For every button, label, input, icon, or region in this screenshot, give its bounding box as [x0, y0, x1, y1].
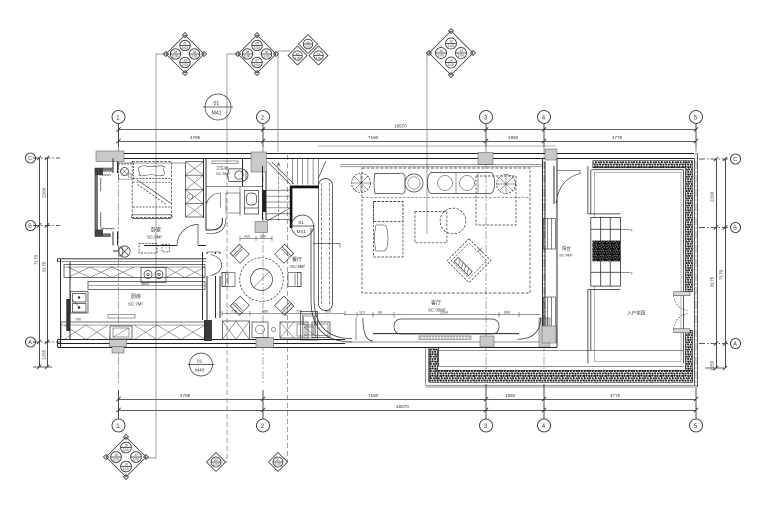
svg-text:1255: 1255 — [710, 360, 715, 371]
svg-text:2200: 2200 — [710, 191, 715, 202]
svg-text:08: 08 — [246, 50, 250, 54]
svg-text:14: 14 — [449, 59, 453, 63]
svg-text:06: 06 — [265, 50, 269, 54]
svg-text:4785: 4785 — [190, 135, 201, 140]
svg-text:3.00: 3.00 — [123, 448, 129, 452]
svg-text:3.00: 3.00 — [244, 55, 250, 59]
svg-text:7160: 7160 — [368, 393, 379, 398]
svg-text:960: 960 — [262, 309, 268, 313]
svg-text:16: 16 — [124, 444, 128, 448]
svg-text:阳台: 阳台 — [562, 245, 571, 252]
svg-text:A: A — [28, 340, 32, 346]
svg-text:3.00: 3.00 — [438, 54, 444, 58]
svg-text:SC:9M²: SC:9M² — [290, 264, 305, 269]
svg-text:SC:9M²: SC:9M² — [147, 235, 162, 240]
svg-text:17: 17 — [134, 453, 138, 457]
svg-text:卫生间: 卫生间 — [216, 165, 228, 171]
svg-text:卧室: 卧室 — [151, 227, 161, 234]
svg-text:B: B — [28, 224, 32, 230]
svg-text:740: 740 — [75, 318, 81, 322]
svg-text:M41: M41 — [212, 111, 222, 117]
svg-text:3.00: 3.00 — [254, 46, 260, 50]
svg-text:18570: 18570 — [396, 404, 409, 409]
svg-text:3.00: 3.00 — [133, 458, 139, 462]
svg-text:3.00: 3.00 — [213, 463, 219, 467]
svg-text:3.00: 3.00 — [458, 54, 464, 58]
svg-text:餐厅: 餐厅 — [292, 256, 302, 263]
svg-text:1850: 1850 — [505, 393, 516, 398]
svg-text:12: 12 — [449, 40, 453, 44]
svg-text:3.00: 3.00 — [305, 45, 311, 49]
svg-text:01: 01 — [214, 101, 220, 107]
svg-text:3.00: 3.00 — [275, 463, 281, 467]
svg-text:2200: 2200 — [42, 187, 47, 198]
svg-text:18570: 18570 — [394, 124, 407, 129]
svg-text:3.00: 3.00 — [172, 55, 178, 59]
svg-text:20: 20 — [214, 458, 218, 462]
svg-text:3.00: 3.00 — [191, 55, 197, 59]
svg-text:3175: 3175 — [710, 276, 715, 287]
svg-text:02: 02 — [193, 50, 197, 54]
svg-text:3600: 3600 — [141, 282, 149, 286]
svg-text:3.00: 3.00 — [123, 467, 129, 471]
svg-text:M41: M41 — [297, 229, 307, 235]
svg-text:3.00: 3.00 — [295, 56, 301, 60]
svg-text:600: 600 — [504, 311, 510, 315]
svg-text:03: 03 — [183, 59, 187, 63]
svg-text:900: 900 — [325, 309, 331, 313]
svg-text:01: 01 — [299, 220, 305, 226]
svg-text:3.00: 3.00 — [182, 46, 188, 50]
svg-text:3.00: 3.00 — [448, 44, 454, 48]
svg-text:厨房: 厨房 — [131, 293, 141, 300]
svg-text:客厅: 客厅 — [431, 300, 441, 307]
svg-text:90: 90 — [378, 311, 382, 315]
svg-text:1850: 1850 — [508, 135, 519, 140]
svg-text:04: 04 — [174, 50, 178, 54]
svg-text:7160: 7160 — [368, 135, 379, 140]
svg-text:3.00: 3.00 — [316, 56, 322, 60]
svg-text:C: C — [28, 156, 32, 162]
svg-text:18: 18 — [124, 463, 128, 467]
svg-text:4775: 4775 — [610, 393, 621, 398]
svg-text:01: 01 — [197, 359, 203, 365]
svg-text:520: 520 — [260, 235, 266, 239]
svg-text:4775: 4775 — [612, 135, 623, 140]
svg-text:7170: 7170 — [719, 269, 724, 280]
svg-text:SC:30M²: SC:30M² — [428, 308, 446, 313]
svg-text:A: A — [733, 342, 737, 348]
svg-text:C: C — [733, 157, 737, 163]
svg-text:110: 110 — [359, 311, 365, 315]
svg-text:710: 710 — [231, 309, 237, 313]
svg-text:15: 15 — [439, 49, 443, 53]
svg-text:07: 07 — [255, 59, 259, 63]
svg-text:13: 13 — [459, 49, 463, 53]
svg-text:入户花园: 入户花园 — [627, 310, 646, 317]
svg-text:21: 21 — [276, 458, 280, 462]
svg-text:3.00: 3.00 — [182, 63, 188, 67]
svg-text:B: B — [733, 226, 737, 232]
svg-text:410: 410 — [244, 235, 250, 239]
svg-text:3.00: 3.00 — [254, 63, 260, 67]
svg-text:7170: 7170 — [34, 254, 39, 265]
svg-text:M40: M40 — [195, 368, 205, 374]
svg-text:3.00: 3.00 — [448, 63, 454, 67]
svg-text:SC:7M²: SC:7M² — [128, 302, 143, 307]
svg-text:4785: 4785 — [180, 393, 191, 398]
svg-text:19: 19 — [114, 453, 118, 457]
svg-text:1255: 1255 — [42, 349, 47, 360]
svg-text:3.00: 3.00 — [113, 458, 119, 462]
svg-text:3175: 3175 — [42, 261, 47, 272]
svg-text:3.00: 3.00 — [263, 55, 269, 59]
svg-text:01: 01 — [183, 42, 187, 46]
svg-text:SC:5M²: SC:5M² — [216, 171, 230, 176]
svg-text:SC:4M²: SC:4M² — [559, 253, 573, 258]
svg-text:05: 05 — [255, 42, 259, 46]
